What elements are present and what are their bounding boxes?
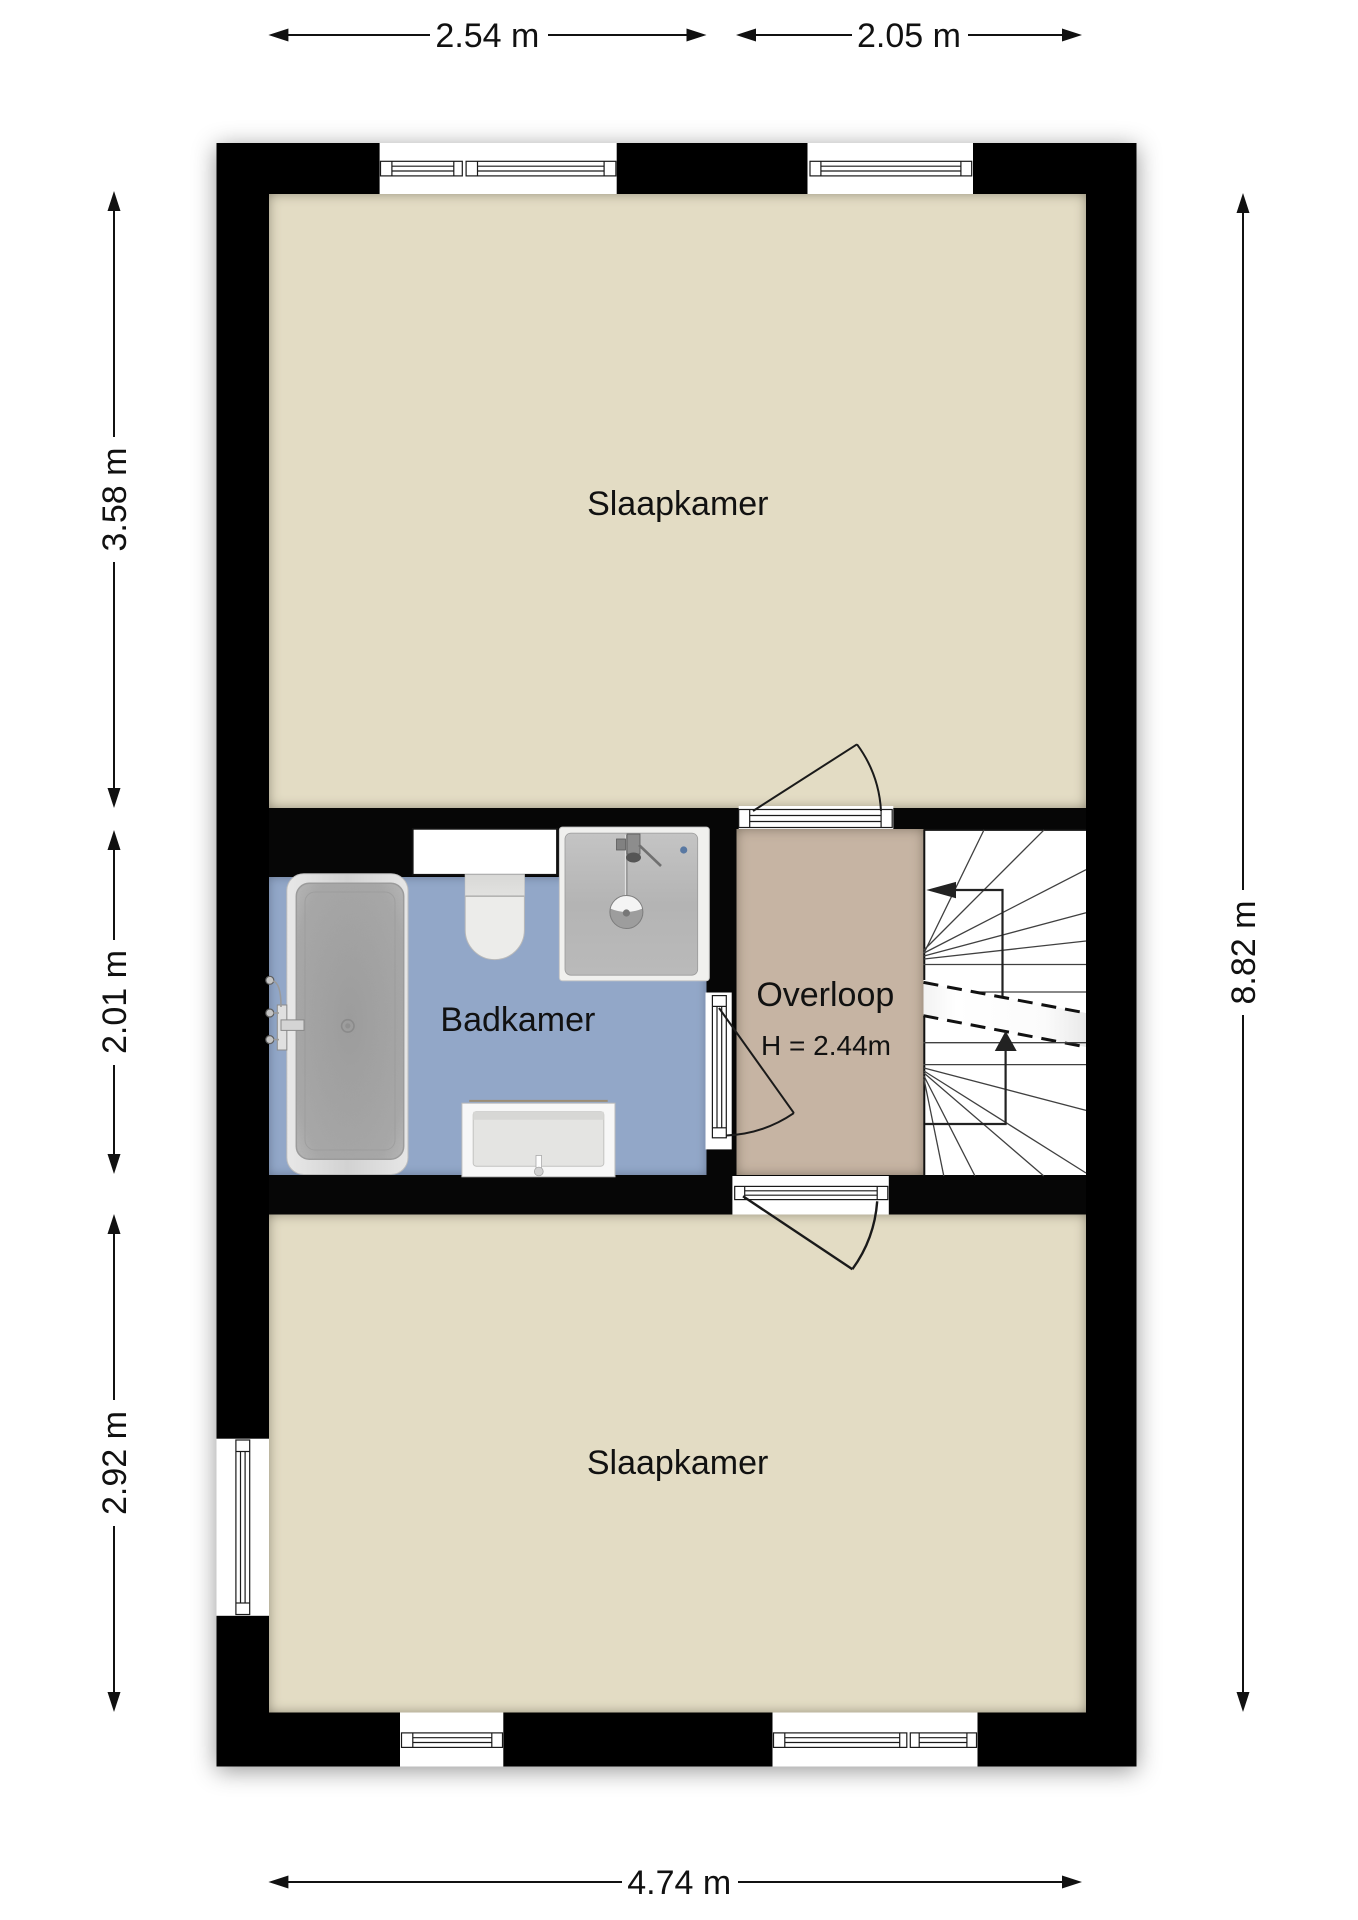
svg-text:Badkamer: Badkamer <box>440 1001 595 1039</box>
svg-text:3.58 m: 3.58 m <box>96 448 134 552</box>
svg-text:Slaapkamer: Slaapkamer <box>587 1444 768 1482</box>
svg-text:Slaapkamer: Slaapkamer <box>587 485 768 523</box>
svg-text:4.74 m: 4.74 m <box>627 1864 731 1902</box>
svg-text:2.92 m: 2.92 m <box>96 1411 134 1515</box>
svg-text:8.82 m: 8.82 m <box>1225 901 1263 1005</box>
svg-text:H = 2.44m: H = 2.44m <box>761 1030 891 1061</box>
svg-text:Overloop: Overloop <box>756 976 894 1014</box>
svg-text:2.54 m: 2.54 m <box>435 17 539 55</box>
svg-text:2.05 m: 2.05 m <box>857 17 961 55</box>
svg-text:2.01 m: 2.01 m <box>96 950 134 1054</box>
